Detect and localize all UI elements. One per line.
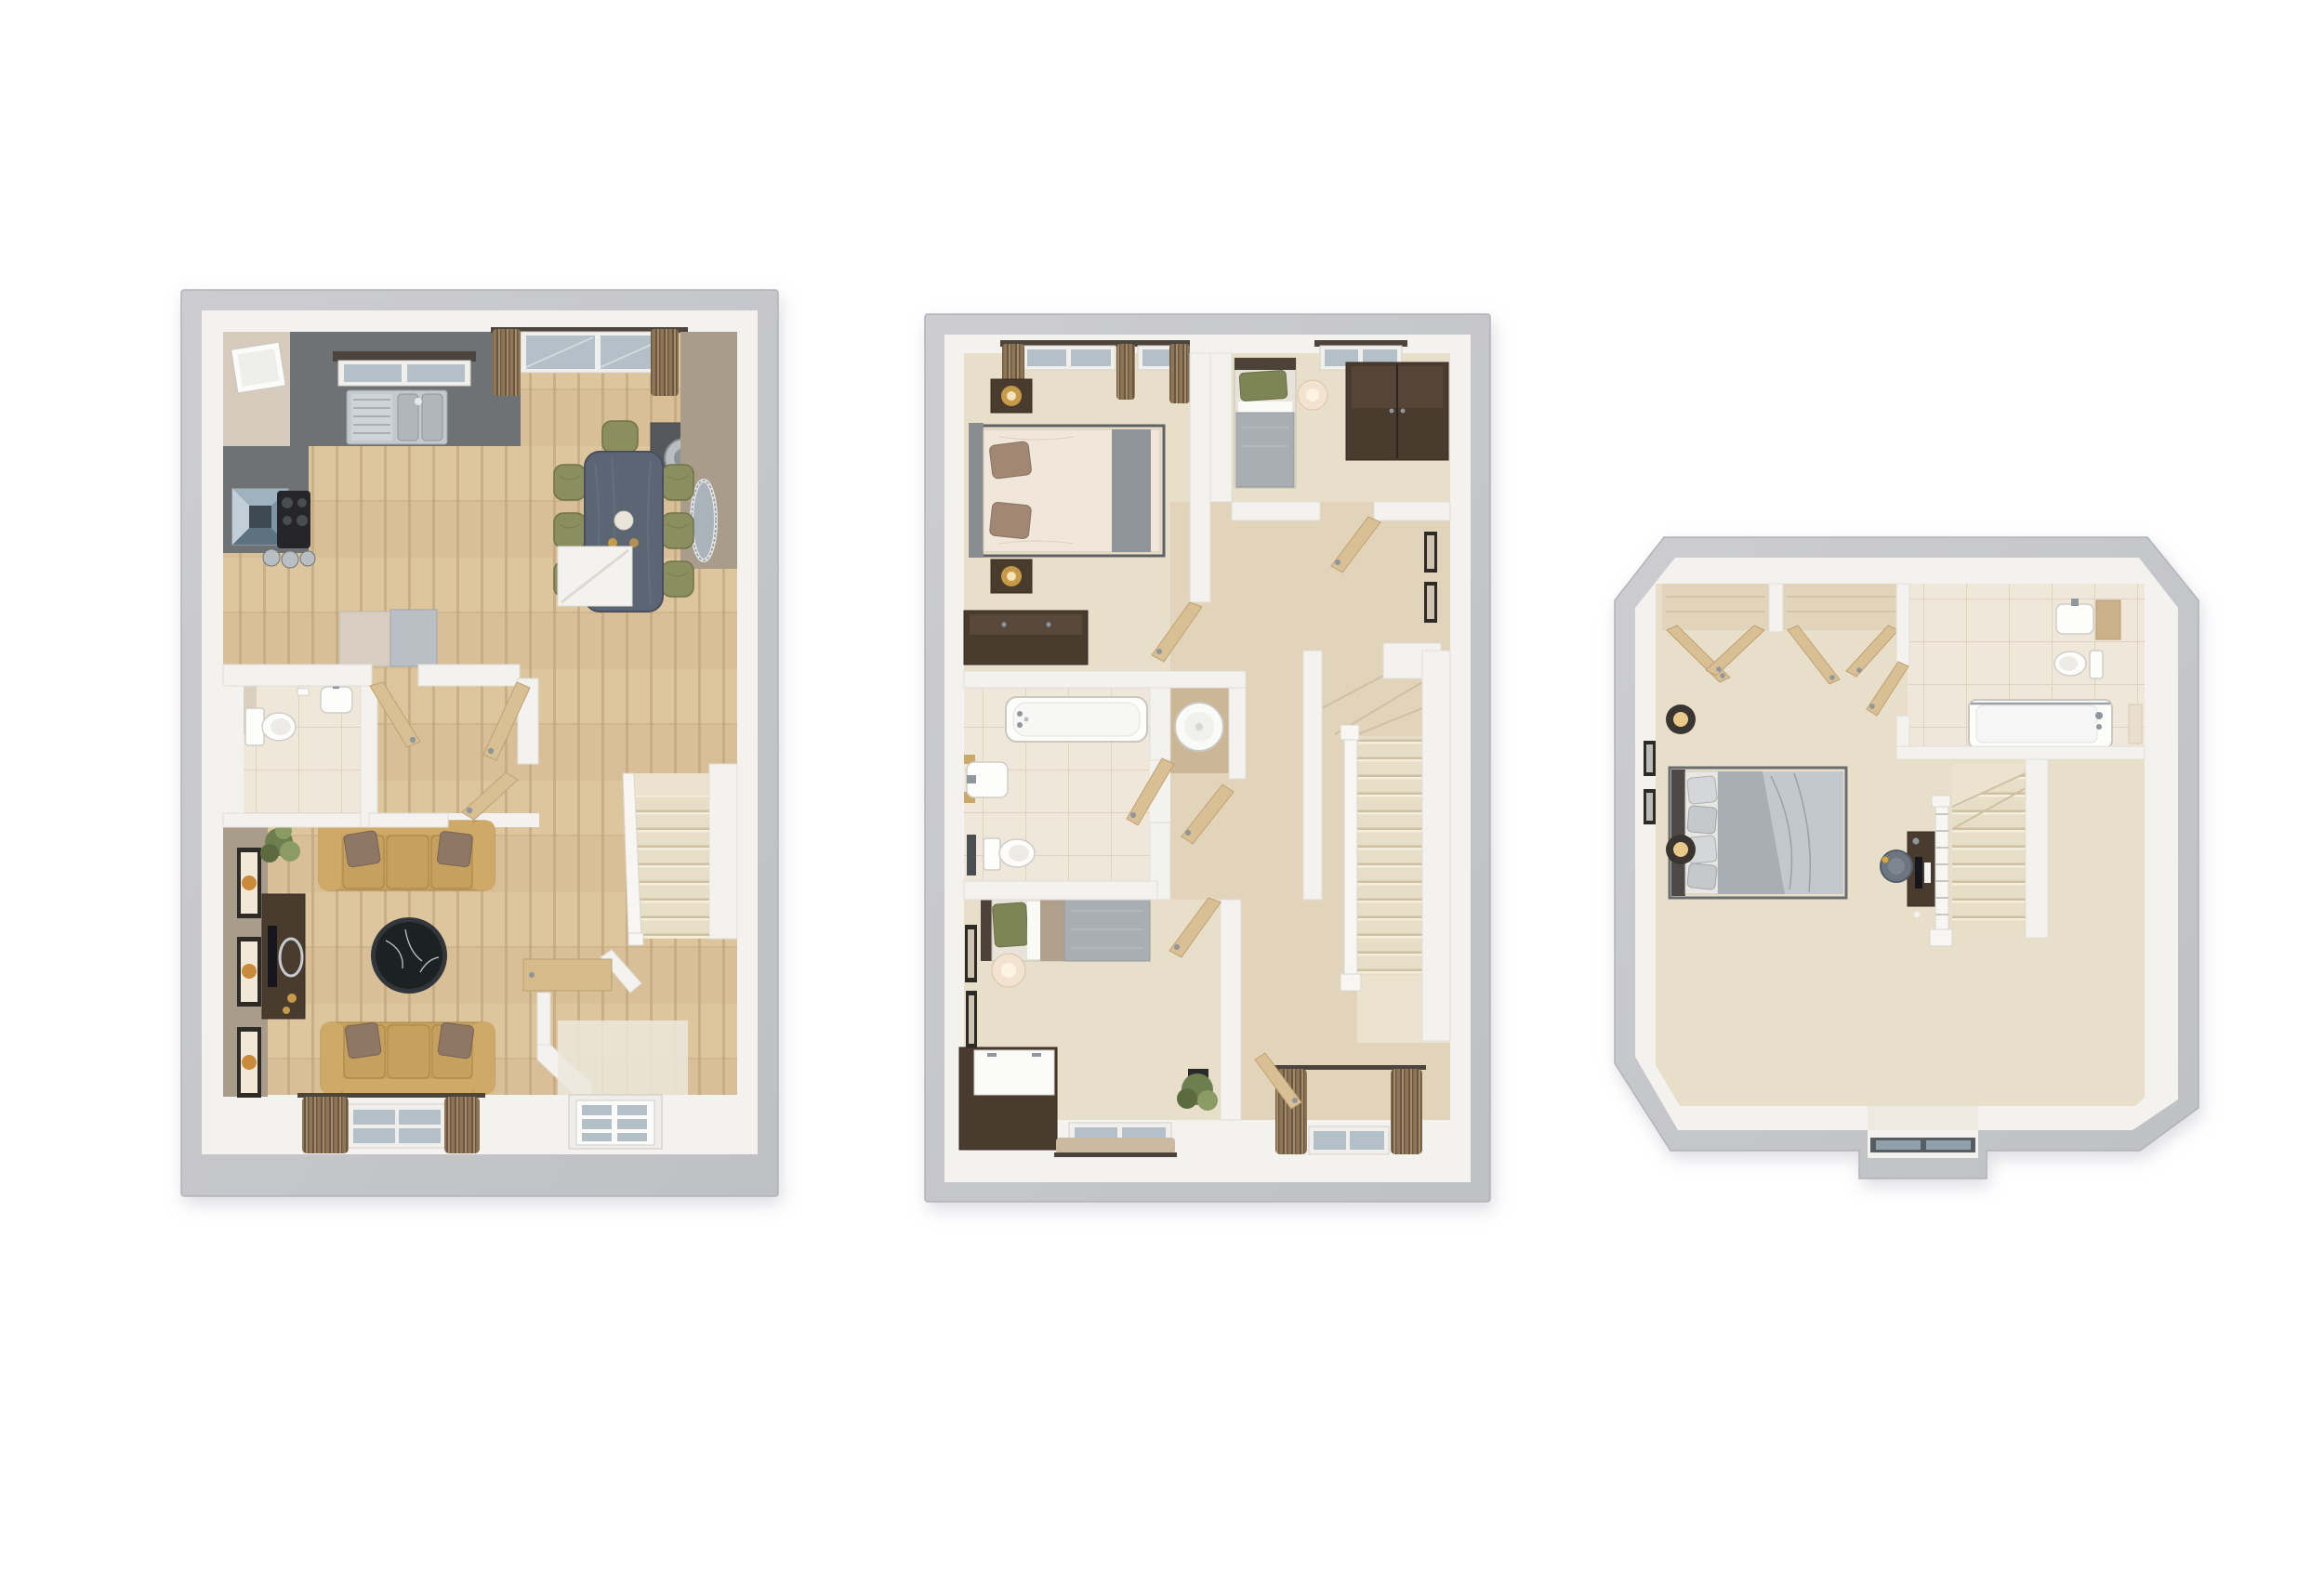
master-bed [1670,768,1846,898]
airing-cupboard [1170,688,1229,773]
bedroom2-window [1054,1123,1177,1157]
floor-plans-svg [0,0,2324,1580]
landing-banister [1344,736,1357,976]
first-floor-plan [925,314,1490,1202]
curtain [493,329,521,396]
wardrobe [1346,362,1448,460]
bathtub [1006,697,1147,742]
ensuite-toilet [2054,651,2103,678]
bathroom-basin [964,755,1008,803]
ensuite-basin [2056,599,2120,639]
coffee-table [371,917,447,994]
curtain [302,1097,349,1153]
second-floor-plan [1615,537,2199,1178]
sofa-top [319,821,495,890]
kitchen-window [333,351,476,386]
wc [244,677,361,813]
tv-unit [262,894,305,1019]
kitchen-dining [223,327,737,686]
single-bed [1235,358,1296,488]
monitor [1915,857,1922,889]
tv [268,926,277,987]
floor-plans-canvas [0,0,2324,1580]
keyboard [1924,862,1931,883]
double-bed [969,423,1164,558]
dresser [964,611,1088,665]
sink-unit [347,390,447,444]
dormer [1868,1106,1978,1152]
fridge [231,342,286,393]
ground-floor-stairs [623,773,709,945]
stairs-cut-block [558,546,632,606]
entry-mat [558,1020,688,1095]
curtain [651,329,679,396]
blanket-chest [959,1047,1057,1150]
wall-mirror [692,481,716,560]
curtain [444,1097,480,1153]
bedroom2-bed [981,900,1150,961]
ground-floor-plan [181,290,778,1196]
desk-chair [1881,850,1912,882]
roll-holder [297,689,309,695]
console-shelf [523,959,612,991]
front-door [569,1095,662,1149]
breakfast-island [339,610,437,666]
wall-art [237,848,261,1098]
sofa-bottom [321,1022,495,1094]
recess-divider [1769,584,1783,632]
